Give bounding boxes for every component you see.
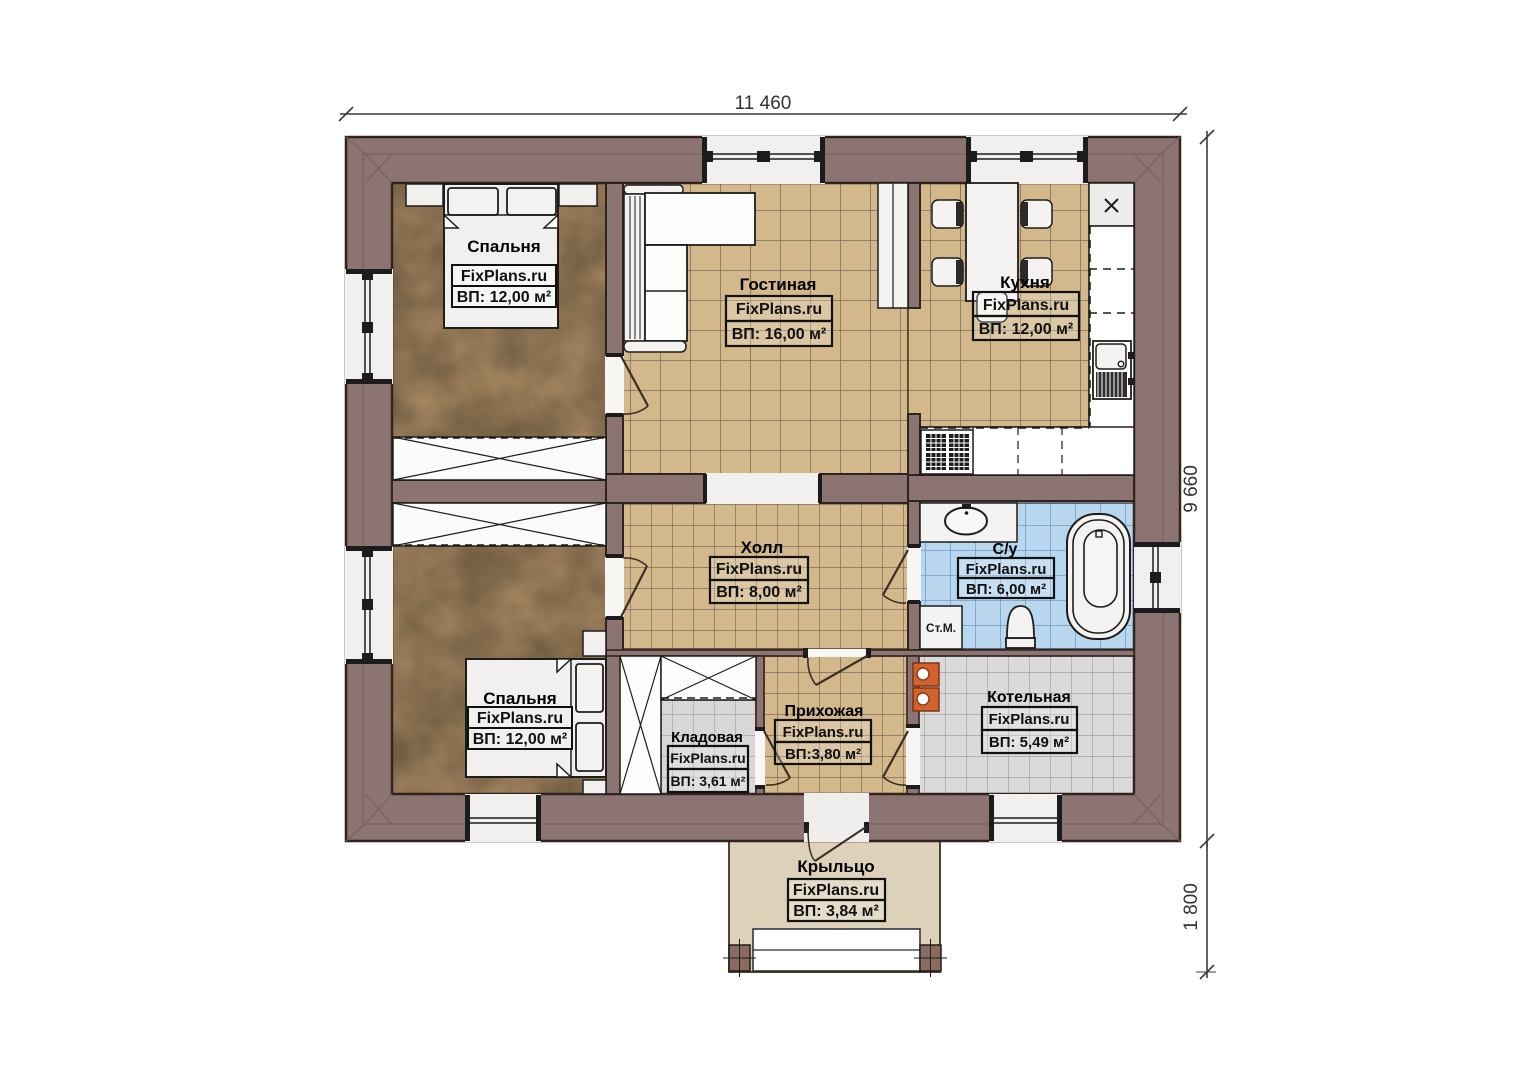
svg-text:Прихожая: Прихожая <box>785 703 864 720</box>
svg-text:FixPlans.ru: FixPlans.ru <box>477 710 563 727</box>
svg-text:FixPlans.ru: FixPlans.ru <box>793 882 879 899</box>
svg-text:FixPlans.ru: FixPlans.ru <box>736 301 822 318</box>
svg-text:FixPlans.ru: FixPlans.ru <box>716 561 802 578</box>
svg-text:9 660: 9 660 <box>1181 465 1202 513</box>
svg-text:FixPlans.ru: FixPlans.ru <box>670 750 745 766</box>
svg-text:FixPlans.ru: FixPlans.ru <box>989 711 1070 728</box>
svg-text:Спальня: Спальня <box>483 689 556 708</box>
svg-text:FixPlans.ru: FixPlans.ru <box>783 724 864 741</box>
svg-text:ВП: 12,00 м²: ВП: 12,00 м² <box>457 289 551 306</box>
svg-text:С/у: С/у <box>993 541 1018 558</box>
svg-text:ВП: 6,00 м²: ВП: 6,00 м² <box>966 581 1046 598</box>
svg-text:Котельная: Котельная <box>987 689 1071 706</box>
svg-text:11 460: 11 460 <box>735 93 792 114</box>
svg-text:FixPlans.ru: FixPlans.ru <box>461 268 547 285</box>
svg-text:ВП: 8,00 м²: ВП: 8,00 м² <box>716 584 802 601</box>
svg-text:Холл: Холл <box>741 538 784 557</box>
svg-text:ВП: 3,84 м²: ВП: 3,84 м² <box>793 903 879 920</box>
svg-text:Кухня: Кухня <box>1000 273 1050 292</box>
svg-text:1 800: 1 800 <box>1181 883 1202 931</box>
svg-text:Спальня: Спальня <box>467 237 540 256</box>
svg-text:ВП: 12,00 м²: ВП: 12,00 м² <box>473 731 567 748</box>
svg-text:Крыльцо: Крыльцо <box>797 857 874 876</box>
svg-text:ВП:3,80 м²: ВП:3,80 м² <box>785 746 861 763</box>
svg-text:ВП: 3,61 м²: ВП: 3,61 м² <box>671 773 746 789</box>
svg-text:FixPlans.ru: FixPlans.ru <box>983 297 1069 314</box>
svg-text:Ст.М.: Ст.М. <box>926 621 956 635</box>
svg-text:ВП: 16,00 м²: ВП: 16,00 м² <box>732 326 826 343</box>
svg-text:ВП: 5,49 м²: ВП: 5,49 м² <box>989 734 1069 751</box>
svg-text:Кладовая: Кладовая <box>671 729 743 746</box>
svg-text:Гостиная: Гостиная <box>740 275 817 294</box>
svg-text:ВП: 12,00 м²: ВП: 12,00 м² <box>979 321 1073 338</box>
svg-text:FixPlans.ru: FixPlans.ru <box>966 561 1047 578</box>
